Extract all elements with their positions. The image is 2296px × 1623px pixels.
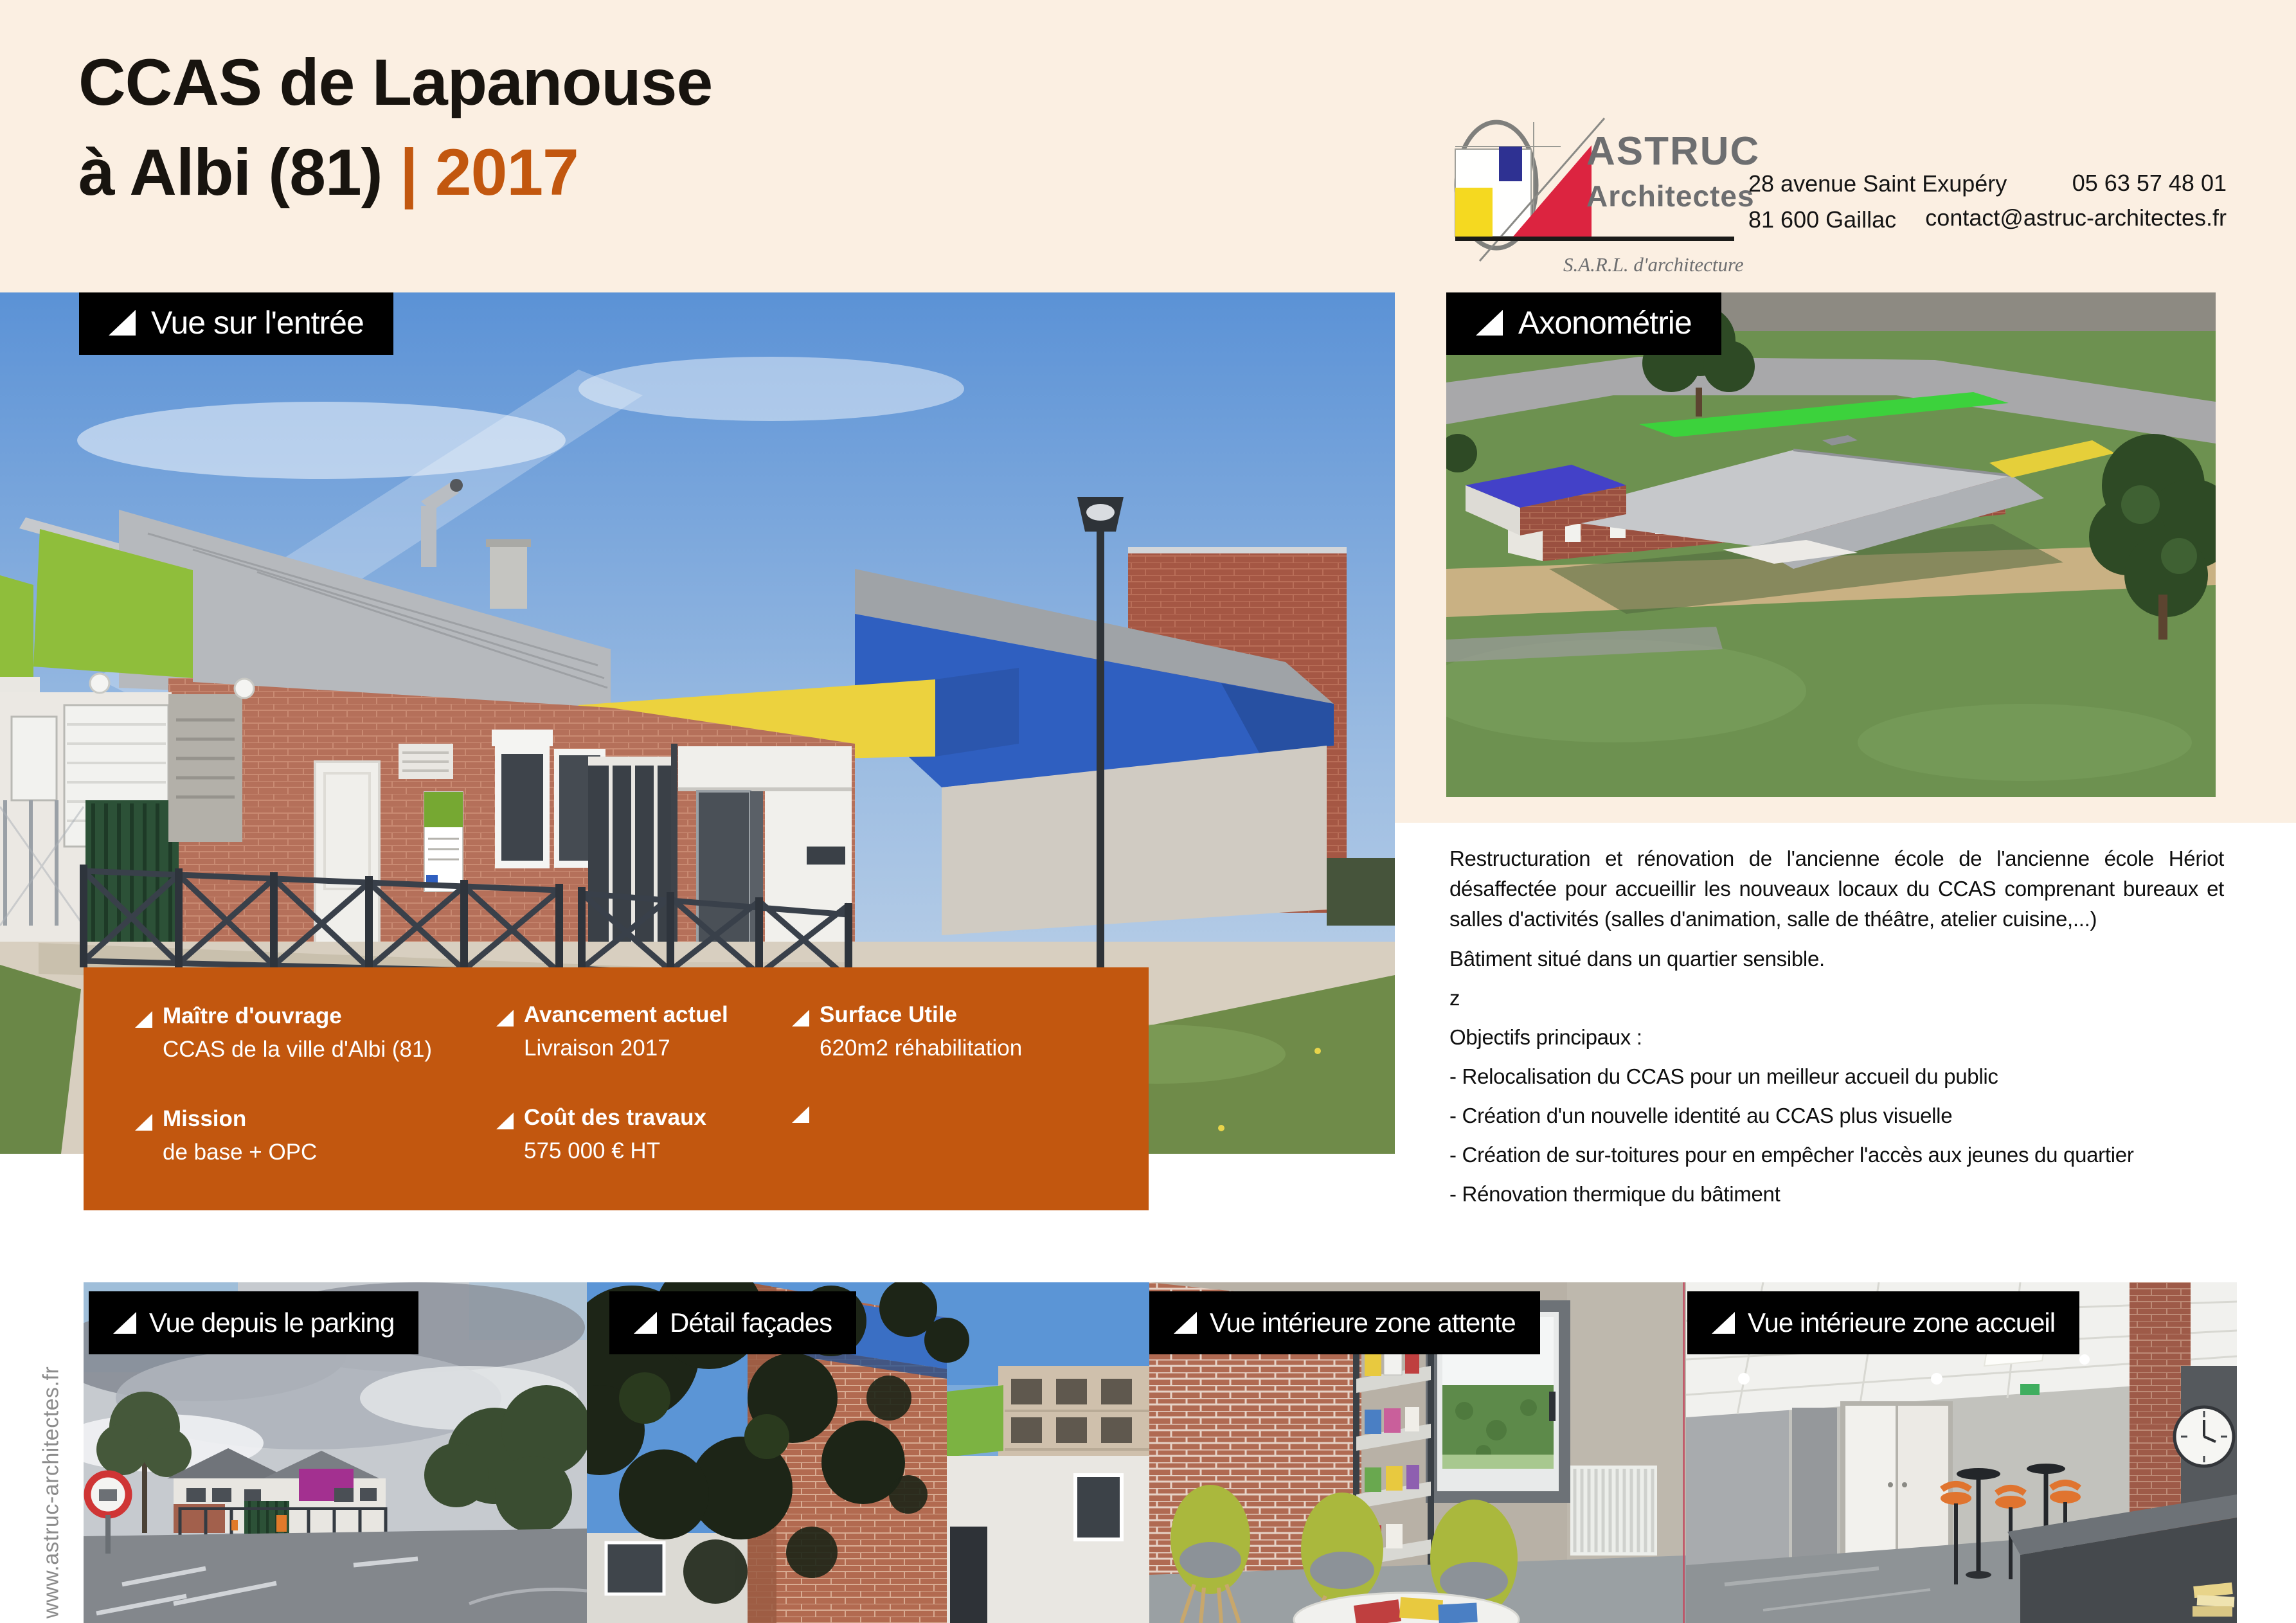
page-title-line2: à Albi (81) <box>78 136 400 209</box>
axo-label-text: Axonométrie <box>1518 304 1692 341</box>
info-label: Surface Utile <box>820 1003 957 1027</box>
info-item-cout: Coût des travaux 575 000 € HT <box>496 1106 706 1164</box>
objective-line: - Relocalisation du CCAS pour un meilleu… <box>1449 1061 2224 1091</box>
objectives-title: Objectifs principaux : <box>1449 1022 2224 1052</box>
brochure-page: CCAS de Lapanouse à Albi (81) | 2017 AST… <box>0 0 2296 1623</box>
contact-phone-email: 05 63 57 48 01 contact@astruc-architecte… <box>1925 166 2227 235</box>
contact-phone: 05 63 57 48 01 <box>1925 166 2227 201</box>
info-label: Coût des travaux <box>524 1106 706 1129</box>
reception-photo-label-text: Vue intérieure zone accueil <box>1748 1307 2055 1338</box>
logo-name: ASTRUC <box>1586 129 1760 174</box>
reception-photo-label: Vue intérieure zone accueil <box>1687 1291 2079 1354</box>
label-triangle-icon <box>135 1011 152 1028</box>
label-triangle-icon <box>135 1114 152 1131</box>
page-title: CCAS de Lapanouse à Albi (81) | 2017 <box>78 37 712 217</box>
waiting-photo-label: Vue intérieure zone attente <box>1149 1291 1540 1354</box>
label-triangle-icon <box>113 1312 136 1334</box>
parking-view-photo: Vue depuis le parking <box>84 1282 587 1623</box>
photo-divider-line <box>1683 1282 1685 1623</box>
parking-photo-label-text: Vue depuis le parking <box>149 1307 394 1338</box>
axonometry-illustration <box>1446 292 2216 797</box>
description-stray-char: z <box>1449 983 2224 1013</box>
project-info-box: Maître d'ouvrage CCAS de la ville d'Albi… <box>84 967 1149 1210</box>
label-triangle-icon <box>792 1106 809 1123</box>
info-label: Avancement actuel <box>524 1003 728 1027</box>
info-label: Mission <box>163 1107 246 1131</box>
reception-area-photo: Vue intérieure zone accueil <box>1686 1282 2237 1623</box>
facade-photo-label-text: Détail façades <box>670 1307 832 1338</box>
waiting-photo-label-text: Vue intérieure zone attente <box>1210 1307 1516 1338</box>
main-photo-label: Vue sur l'entrée <box>79 292 393 355</box>
info-item-surface: Surface Utile 620m2 réhabilitation <box>792 1003 1022 1061</box>
info-value: 620m2 réhabilitation <box>820 1036 1022 1061</box>
waiting-area-photo: Vue intérieure zone attente <box>1149 1282 1686 1623</box>
info-item-avancement: Avancement actuel Livraison 2017 <box>496 1003 728 1061</box>
axo-label: Axonométrie <box>1446 292 1721 355</box>
label-triangle-icon <box>496 1010 514 1027</box>
info-item-maitre-ouvrage: Maître d'ouvrage CCAS de la ville d'Albi… <box>135 1005 432 1063</box>
blue-panel <box>935 668 1019 757</box>
project-description: Restructuration et rénovation de l'ancie… <box>1449 843 2224 1218</box>
logo-subname: Architectes <box>1586 179 1755 213</box>
objective-line: - Rénovation thermique du bâtiment <box>1449 1179 2224 1209</box>
info-value: 575 000 € HT <box>524 1138 706 1164</box>
description-paragraph: Restructuration et rénovation de l'ancie… <box>1449 843 2224 934</box>
facade-photo-label: Détail façades <box>609 1291 856 1354</box>
info-value: Livraison 2017 <box>524 1036 728 1061</box>
info-value: CCAS de la ville d'Albi (81) <box>163 1037 432 1063</box>
description-note: Bâtiment situé dans un quartier sensible… <box>1449 944 2224 974</box>
label-triangle-icon <box>792 1010 809 1027</box>
logo-tagline: S.A.R.L. d'architecture <box>1563 253 1744 276</box>
label-triangle-icon <box>109 310 136 336</box>
label-triangle-icon <box>634 1312 657 1334</box>
info-label: Maître d'ouvrage <box>163 1005 342 1028</box>
label-triangle-icon <box>1476 310 1503 336</box>
facade-detail-photo: Détail façades <box>587 1282 1149 1623</box>
objective-line: - Création d'un nouvelle identité au CCA… <box>1449 1100 2224 1131</box>
label-triangle-icon <box>1712 1312 1735 1334</box>
info-item-empty <box>792 1106 820 1132</box>
label-triangle-icon <box>496 1113 514 1129</box>
parking-photo-label: Vue depuis le parking <box>89 1291 418 1354</box>
info-value: de base + OPC <box>163 1140 317 1165</box>
page-title-line1: CCAS de Lapanouse <box>78 46 712 119</box>
info-item-mission: Mission de base + OPC <box>135 1107 317 1165</box>
label-triangle-icon <box>1174 1312 1197 1334</box>
page-title-year: | 2017 <box>400 136 578 209</box>
axonometry-render: Axonométrie <box>1446 292 2216 797</box>
website-vertical-text[interactable]: www.astruc-architectes.fr <box>36 1350 67 1619</box>
contact-email[interactable]: contact@astruc-architectes.fr <box>1925 201 2227 235</box>
main-photo-label-text: Vue sur l'entrée <box>151 304 364 341</box>
objective-line: - Création de sur-toitures pour en empêc… <box>1449 1140 2224 1170</box>
